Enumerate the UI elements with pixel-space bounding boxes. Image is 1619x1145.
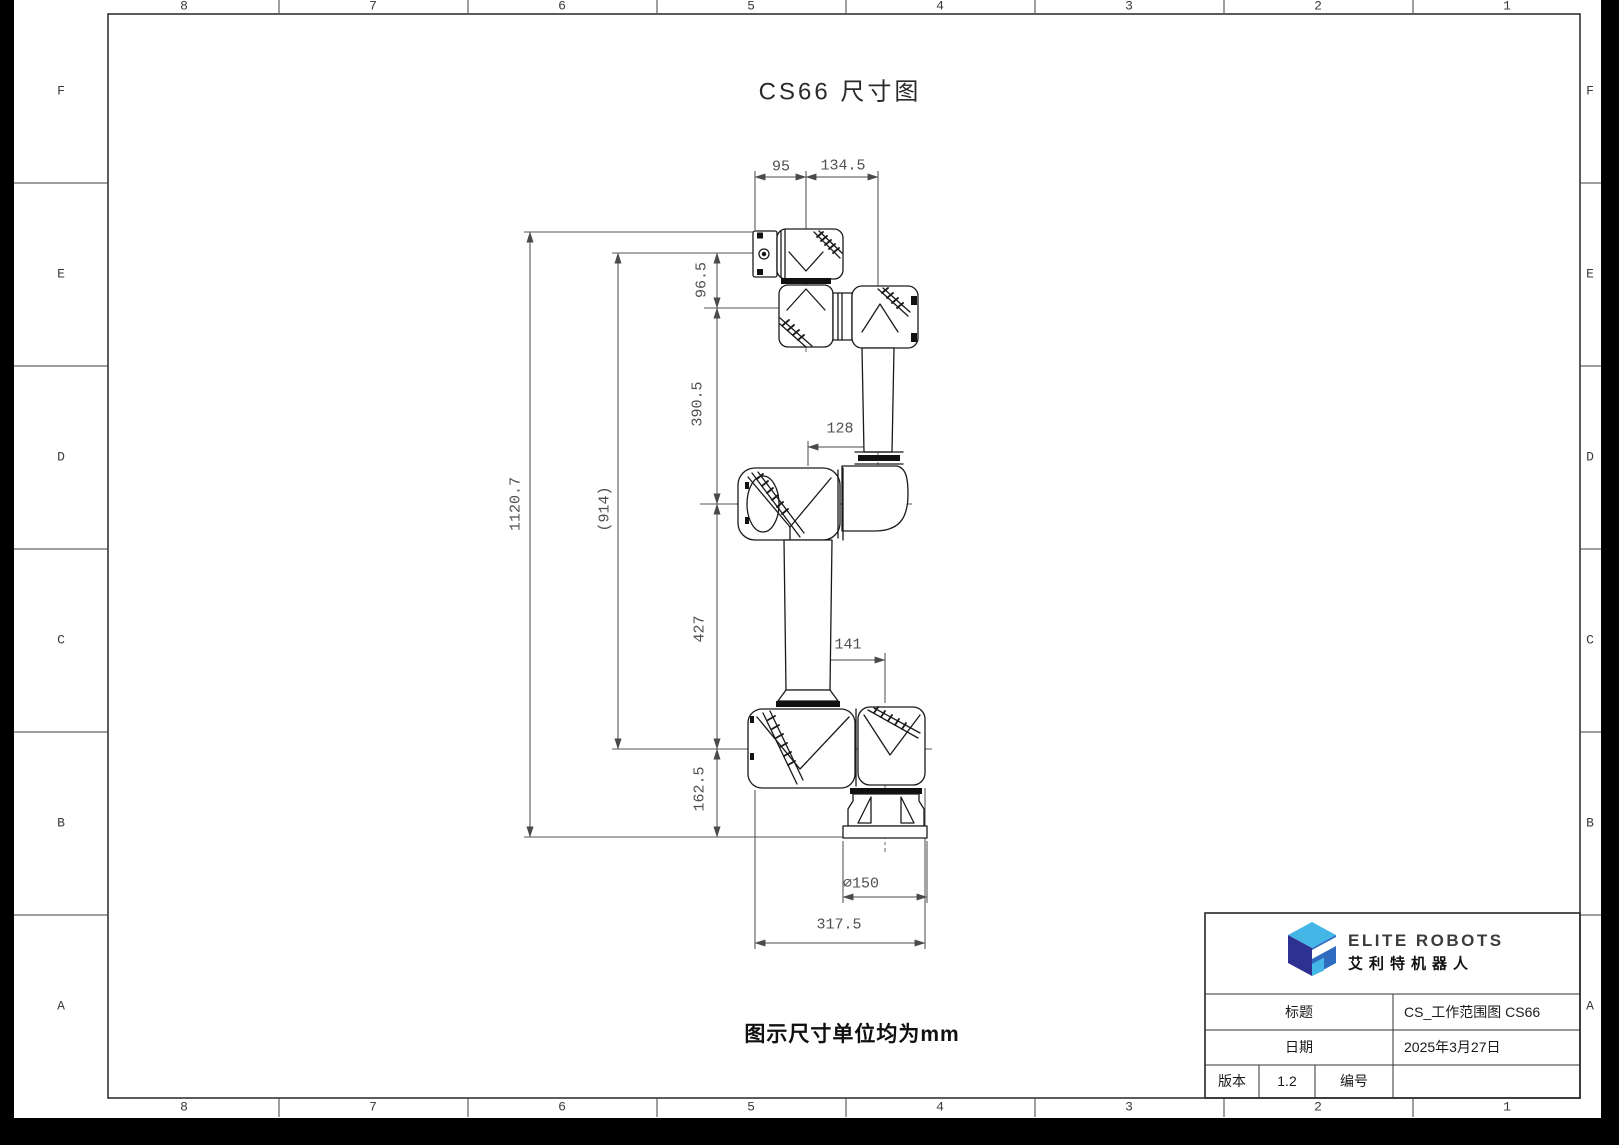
sheet-title: CS66 尺寸图 bbox=[759, 72, 922, 107]
dim-elbow-offset: 128 bbox=[826, 421, 853, 438]
zone-col-bottom: 6 bbox=[558, 1100, 566, 1115]
unit-note: 图示尺寸单位均为mm bbox=[744, 1018, 959, 1048]
dim-total-height: 1120.7 bbox=[508, 477, 525, 531]
zone-col-top: 2 bbox=[1314, 0, 1322, 14]
zone-col-top: 6 bbox=[558, 0, 566, 14]
zone-col-bottom: 8 bbox=[180, 1100, 188, 1115]
zone-col-top: 5 bbox=[747, 0, 755, 14]
dim-base-diameter: ⌀150 bbox=[843, 874, 879, 893]
zone-row-left: D bbox=[57, 450, 65, 465]
zone-col-bottom: 7 bbox=[369, 1100, 377, 1115]
zone-row-left: B bbox=[57, 816, 65, 831]
dim-wrist-height: 96.5 bbox=[694, 262, 711, 298]
dim-base-offset: 141 bbox=[834, 637, 861, 654]
brand-name-en: ELITE ROBOTS bbox=[1348, 931, 1504, 951]
version-label: 版本 bbox=[1218, 1071, 1246, 1091]
brand-name-cn: 艾利特机器人 bbox=[1348, 953, 1474, 974]
dim-upper-arm: 390.5 bbox=[690, 381, 707, 426]
zone-row-left: E bbox=[57, 267, 65, 282]
zone-row-right: A bbox=[1586, 999, 1594, 1014]
zone-col-top: 4 bbox=[936, 0, 944, 14]
dim-span-914: (914) bbox=[597, 486, 614, 531]
zone-col-bottom: 1 bbox=[1503, 1100, 1511, 1115]
zone-col-bottom: 3 bbox=[1125, 1100, 1133, 1115]
zone-col-top: 8 bbox=[180, 0, 188, 14]
version-value: 1.2 bbox=[1277, 1073, 1296, 1089]
zone-row-left: C bbox=[57, 633, 65, 648]
zone-row-left: F bbox=[57, 84, 65, 99]
title-label: 标题 bbox=[1285, 1002, 1313, 1022]
date-value: 2025年3月27日 bbox=[1404, 1037, 1501, 1057]
zone-row-right: E bbox=[1586, 267, 1594, 282]
dim-base-width: 317.5 bbox=[816, 917, 861, 934]
dim-base-height: 162.5 bbox=[692, 766, 709, 811]
zone-col-bottom: 4 bbox=[936, 1100, 944, 1115]
zone-row-right: F bbox=[1586, 84, 1594, 99]
zone-row-left: A bbox=[57, 999, 65, 1014]
dim-wrist-offset: 134.5 bbox=[820, 158, 865, 175]
zone-col-bottom: 2 bbox=[1314, 1100, 1322, 1115]
dim-lower-arm: 427 bbox=[692, 615, 709, 642]
date-label: 日期 bbox=[1285, 1037, 1313, 1057]
zone-row-right: C bbox=[1586, 633, 1594, 648]
dim-flange-offset: 95 bbox=[772, 159, 790, 176]
drawing-sheet: { "page": { "title": "CS66 尺寸图", "unit_n… bbox=[0, 0, 1619, 1145]
title-value: CS_工作范围图 CS66 bbox=[1404, 1002, 1540, 1022]
zone-row-right: B bbox=[1586, 816, 1594, 831]
number-label: 编号 bbox=[1340, 1071, 1368, 1091]
zone-col-top: 3 bbox=[1125, 0, 1133, 14]
zone-row-right: D bbox=[1586, 450, 1594, 465]
zone-col-top: 7 bbox=[369, 0, 377, 14]
zone-col-top: 1 bbox=[1503, 0, 1511, 14]
zone-col-bottom: 5 bbox=[747, 1100, 755, 1115]
